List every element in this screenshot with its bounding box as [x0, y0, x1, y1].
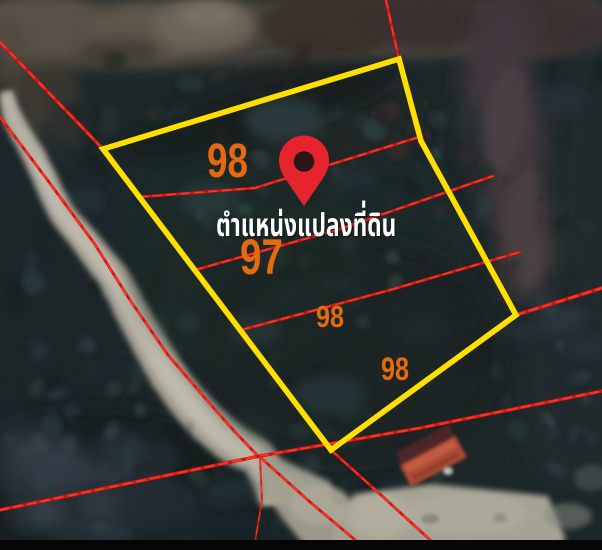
- svg-text:98: 98: [316, 299, 344, 334]
- svg-text:98: 98: [381, 351, 409, 387]
- svg-text:98: 98: [207, 135, 248, 188]
